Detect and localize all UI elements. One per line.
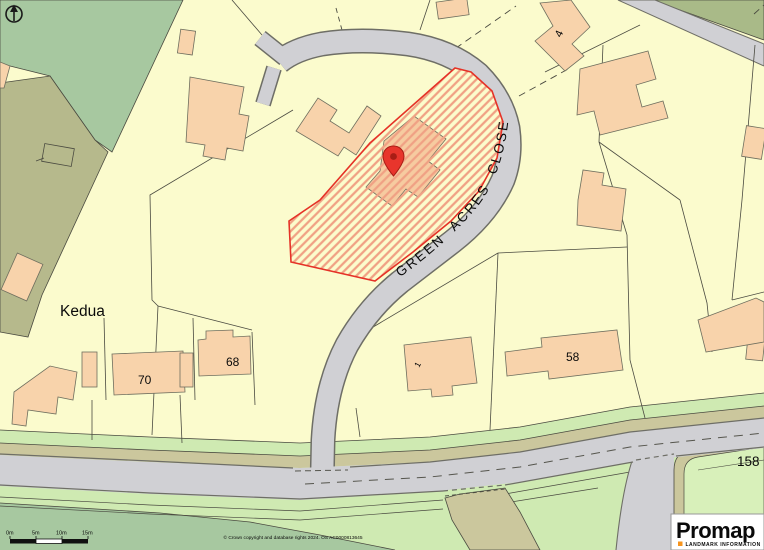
promap-logo-text: Promap <box>676 518 755 543</box>
label-house-158: 158 <box>737 454 760 469</box>
scale-tick-0: 0m <box>6 531 14 537</box>
label-house-58: 58 <box>566 350 580 364</box>
label-house-68: 68 <box>226 355 240 369</box>
scale-tick-10: 10m <box>56 531 67 537</box>
attribution-text: © Crown copyright and database rights 20… <box>223 534 362 541</box>
scale-tick-15: 15m <box>82 531 93 537</box>
map-viewport: GREEN ACRES CLOSE Kedua 70 68 58 4 1 158… <box>0 0 764 550</box>
promap-logo: Promap LANDMARK INFORMATION <box>671 514 764 550</box>
logo-accent-square <box>678 542 683 547</box>
logo-tagline: LANDMARK INFORMATION <box>686 542 761 548</box>
label-property-kedua: Kedua <box>60 303 105 320</box>
map-canvas[interactable]: GREEN ACRES CLOSE Kedua 70 68 58 4 1 158… <box>0 0 764 550</box>
label-house-70: 70 <box>138 373 152 387</box>
scale-tick-5: 5m <box>32 531 40 537</box>
